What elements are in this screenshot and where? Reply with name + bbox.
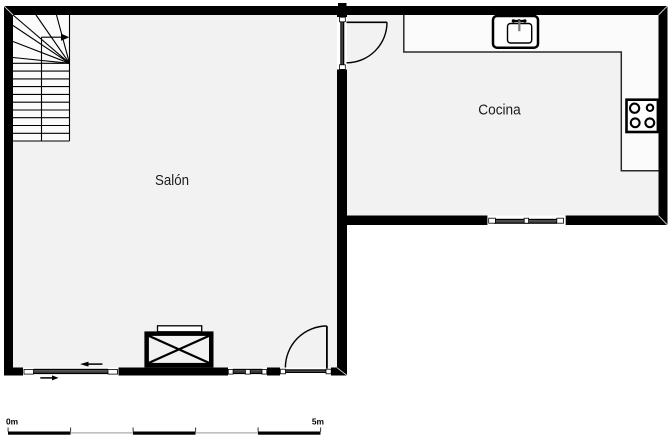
- svg-text:5m: 5m: [312, 416, 324, 426]
- svg-text:Cocina: Cocina: [478, 102, 521, 119]
- svg-text:0m: 0m: [6, 416, 18, 426]
- svg-text:Salón: Salón: [155, 172, 189, 189]
